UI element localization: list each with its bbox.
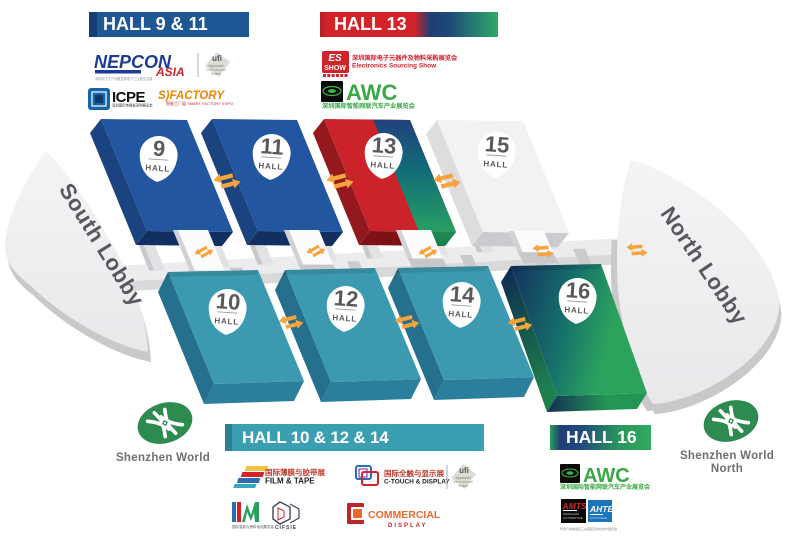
svg-text:AWC: AWC	[346, 80, 397, 105]
svg-text:HALL: HALL	[214, 316, 239, 327]
svg-text:12: 12	[333, 285, 359, 312]
svg-text:国际氢能与燃料电池展览会: 国际氢能与燃料电池展览会	[232, 524, 274, 529]
svg-text:HALL 13: HALL 13	[334, 14, 407, 34]
svg-text:CIFSIE: CIFSIE	[275, 525, 297, 531]
svg-text:DISPLAY: DISPLAY	[388, 523, 427, 529]
svg-text:13: 13	[371, 132, 397, 159]
svg-text:SHOW: SHOW	[324, 65, 346, 72]
svg-text:ufi: ufi	[212, 54, 222, 63]
svg-text:Shenzhen World: Shenzhen World	[680, 450, 774, 462]
svg-text:HALL: HALL	[332, 313, 357, 324]
svg-text:14: 14	[449, 281, 476, 308]
svg-text:深圳国际电子元器件及物料采购展览会: 深圳国际电子元器件及物料采购展览会	[352, 54, 458, 62]
svg-text:深圳国际电路板采购展览会: 深圳国际电路板采购展览会	[112, 103, 153, 108]
svg-text:HALL: HALL	[564, 305, 589, 316]
svg-text:FILM & TAPE: FILM & TAPE	[265, 477, 315, 486]
svg-text:HALL: HALL	[370, 160, 395, 171]
svg-text:C-TOUCH & DISPLAY: C-TOUCH & DISPLAY	[384, 479, 450, 486]
svg-text:HALL: HALL	[483, 159, 508, 170]
svg-text:11: 11	[260, 133, 285, 160]
svg-text:HALL: HALL	[448, 309, 473, 320]
svg-text:COMMERCIAL: COMMERCIAL	[368, 509, 441, 521]
svg-text:深圳国际智能网联汽车产业展览会: 深圳国际智能网联汽车产业展览会	[322, 102, 416, 110]
svg-text:10: 10	[215, 288, 241, 315]
svg-text:HALL 16: HALL 16	[566, 427, 637, 447]
svg-text:HALL 10 & 12 & 14: HALL 10 & 12 & 14	[242, 428, 389, 447]
svg-text:15: 15	[484, 131, 510, 158]
svg-text:华南汽车制造及工业装配自动化技术展览会: 华南汽车制造及工业装配自动化技术展览会	[560, 526, 617, 531]
svg-text:国际全触与显示展: 国际全触与显示展	[384, 468, 444, 478]
svg-text:AWC: AWC	[583, 465, 630, 487]
svg-text:16: 16	[565, 277, 591, 304]
svg-text:9: 9	[152, 136, 166, 162]
svg-text:AMTS: AMTS	[562, 501, 587, 511]
svg-text:Event: Event	[459, 484, 468, 488]
svg-text:AUTOMOTIVE: AUTOMOTIVE	[563, 516, 583, 520]
svg-text:ES: ES	[328, 53, 342, 64]
svg-text:AUTO TECH: AUTO TECH	[590, 516, 607, 520]
svg-text:Event: Event	[212, 72, 221, 76]
svg-text:Shenzhen World: Shenzhen World	[116, 452, 210, 464]
svg-text:ufi: ufi	[459, 466, 469, 475]
svg-text:AHTE: AHTE	[589, 504, 613, 514]
svg-text:North: North	[711, 463, 743, 475]
svg-text:国际薄膜与胶带展: 国际薄膜与胶带展	[265, 467, 325, 477]
svg-text:深圳国际智能网联汽车产业展览会: 深圳国际智能网联汽车产业展览会	[560, 483, 651, 491]
svg-text:ASIA: ASIA	[155, 65, 185, 79]
svg-text:HALL: HALL	[145, 163, 170, 174]
svg-text:Electronics Sourcing Show: Electronics Sourcing Show	[352, 63, 437, 70]
svg-text:HALL: HALL	[258, 161, 283, 172]
svg-text:智能工厂展 SMART FACTORY EXPO: 智能工厂展 SMART FACTORY EXPO	[166, 100, 233, 106]
svg-text:深圳电子生产设备暨微电子工业展览会展: 深圳电子生产设备暨微电子工业展览会展	[95, 76, 153, 81]
svg-text:HALL 9 & 11: HALL 9 & 11	[103, 14, 208, 34]
